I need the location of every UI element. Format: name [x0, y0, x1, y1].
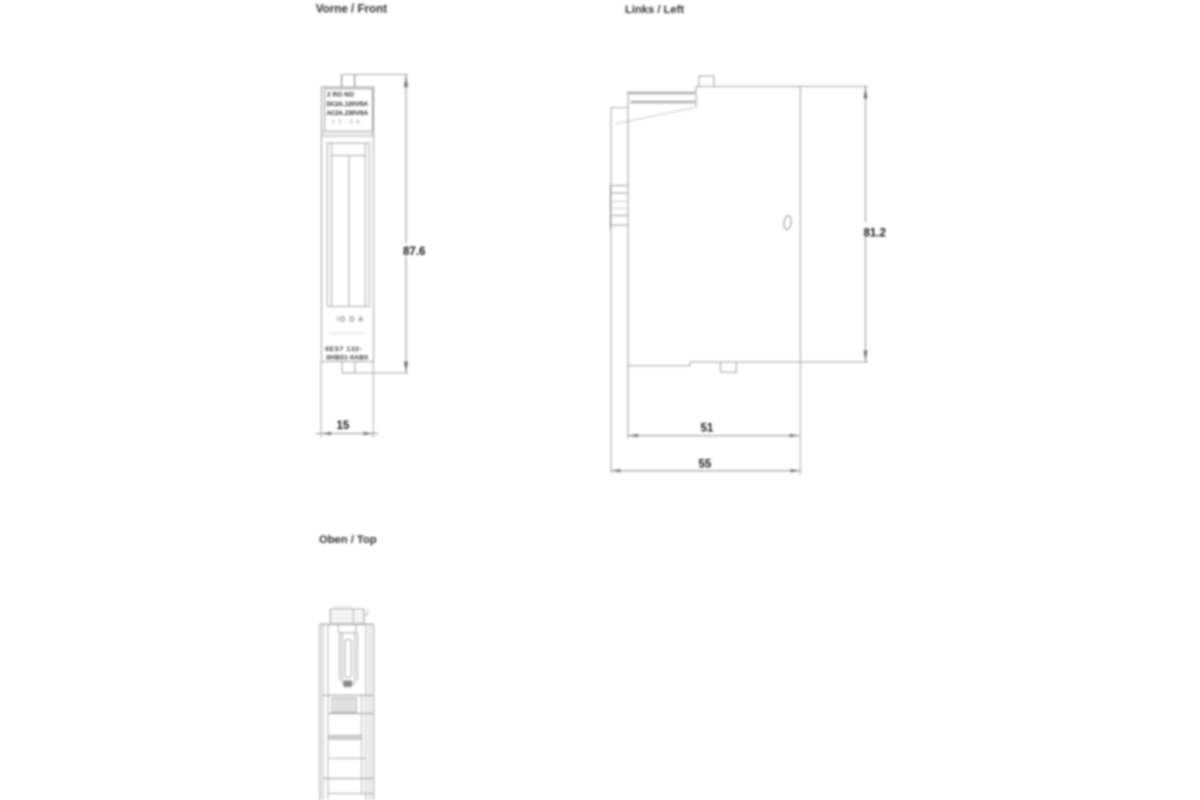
svg-text:DC24..120V/5A: DC24..120V/5A — [327, 101, 369, 108]
svg-text:87.6: 87.6 — [403, 246, 425, 258]
svg-text:81.2: 81.2 — [864, 228, 886, 240]
svg-text:51: 51 — [701, 423, 714, 435]
svg-text:Links / Left: Links / Left — [625, 4, 684, 16]
svg-text:Oben / Top: Oben / Top — [319, 534, 377, 546]
svg-text:4HB01-0AB0: 4HB01-0AB0 — [326, 354, 368, 361]
svg-text:AC24..230V/5A: AC24..230V/5A — [327, 110, 369, 117]
svg-text:6ES7 132-: 6ES7 132- — [325, 346, 362, 353]
svg-text:2 RO NO: 2 RO NO — [327, 92, 354, 99]
svg-text:1 2 . 3 4 .: 1 2 . 3 4 . — [332, 120, 364, 126]
svg-text:15: 15 — [337, 420, 350, 432]
svg-text:55: 55 — [699, 459, 712, 471]
svg-text:!O D A: !O D A — [337, 317, 364, 324]
svg-text:Vorne / Front: Vorne / Front — [316, 3, 387, 16]
